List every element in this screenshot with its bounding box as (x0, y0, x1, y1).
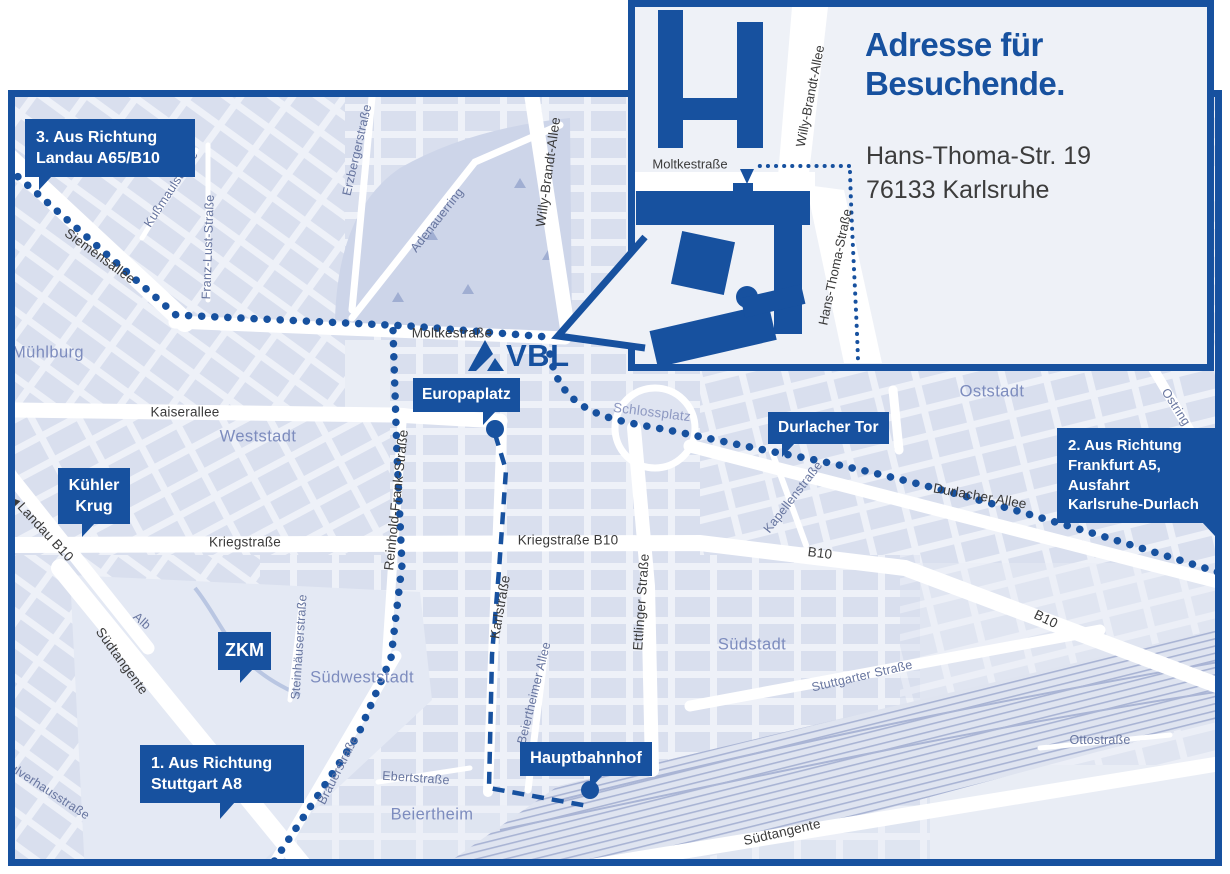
district-label-weststadt: Weststadt (220, 428, 297, 447)
callout-pointer (483, 411, 496, 425)
district-label-beiertheim: Beiertheim (391, 806, 474, 825)
callout-pointer (1202, 522, 1215, 536)
callout-route-3-landau: 3. Aus Richtung Landau A65/B10 (25, 119, 195, 177)
callout-zkm: ZKM (218, 632, 271, 670)
district-label-muehlburg: Mühlburg (12, 344, 84, 363)
district-label-oststadt: Oststadt (960, 383, 1025, 402)
callout-durlacher-tor: Durlacher Tor (768, 412, 889, 444)
callout-pointer (590, 775, 603, 789)
street-label-kriegstrasse-b10: Kriegstraße B10 (518, 533, 619, 548)
inset-pointer-tail (548, 234, 658, 354)
street-label-kriegstrasse: Kriegstraße (209, 535, 281, 550)
callout-pointer (240, 669, 253, 683)
street-label-b10-center: B10 (807, 544, 833, 562)
inset-street-label-moltkestrasse: Moltkestraße (652, 157, 727, 172)
callout-pointer (39, 176, 52, 190)
callout-route-2-frankfurt: 2. Aus Richtung Frankfurt A5, Ausfahrt K… (1057, 428, 1222, 523)
callout-pointer (220, 802, 235, 819)
callout-pointer (82, 523, 95, 537)
callout-kuehler-krug: Kühler Krug (58, 468, 130, 524)
callout-hauptbahnhof: Hauptbahnhof (520, 742, 652, 776)
inset-address: Hans-Thoma-Str. 19 76133 Karlsruhe (866, 140, 1091, 208)
callout-europaplatz: Europaplatz (413, 378, 520, 412)
visitor-address-inset: Moltkestraße Willy-Brandt-Allee Hans-Tho… (628, 0, 1214, 371)
inset-content: Moltkestraße Willy-Brandt-Allee Hans-Tho… (628, 0, 1214, 371)
inset-title: Adresse für Besuchende. (865, 26, 1065, 104)
street-label-moltkestrasse: Moltkestraße (412, 326, 492, 341)
district-label-suedweststadt: Südweststadt (310, 669, 414, 688)
street-label-ottostrasse: Ottostraße (1069, 733, 1130, 747)
callout-route-1-stuttgart: 1. Aus Richtung Stuttgart A8 (140, 745, 304, 803)
street-label-kaiserallee: Kaiserallee (151, 405, 220, 420)
callout-pointer (782, 443, 795, 457)
vbl-triangle-icon (468, 340, 504, 371)
district-label-suedstadt: Südstadt (718, 636, 786, 655)
